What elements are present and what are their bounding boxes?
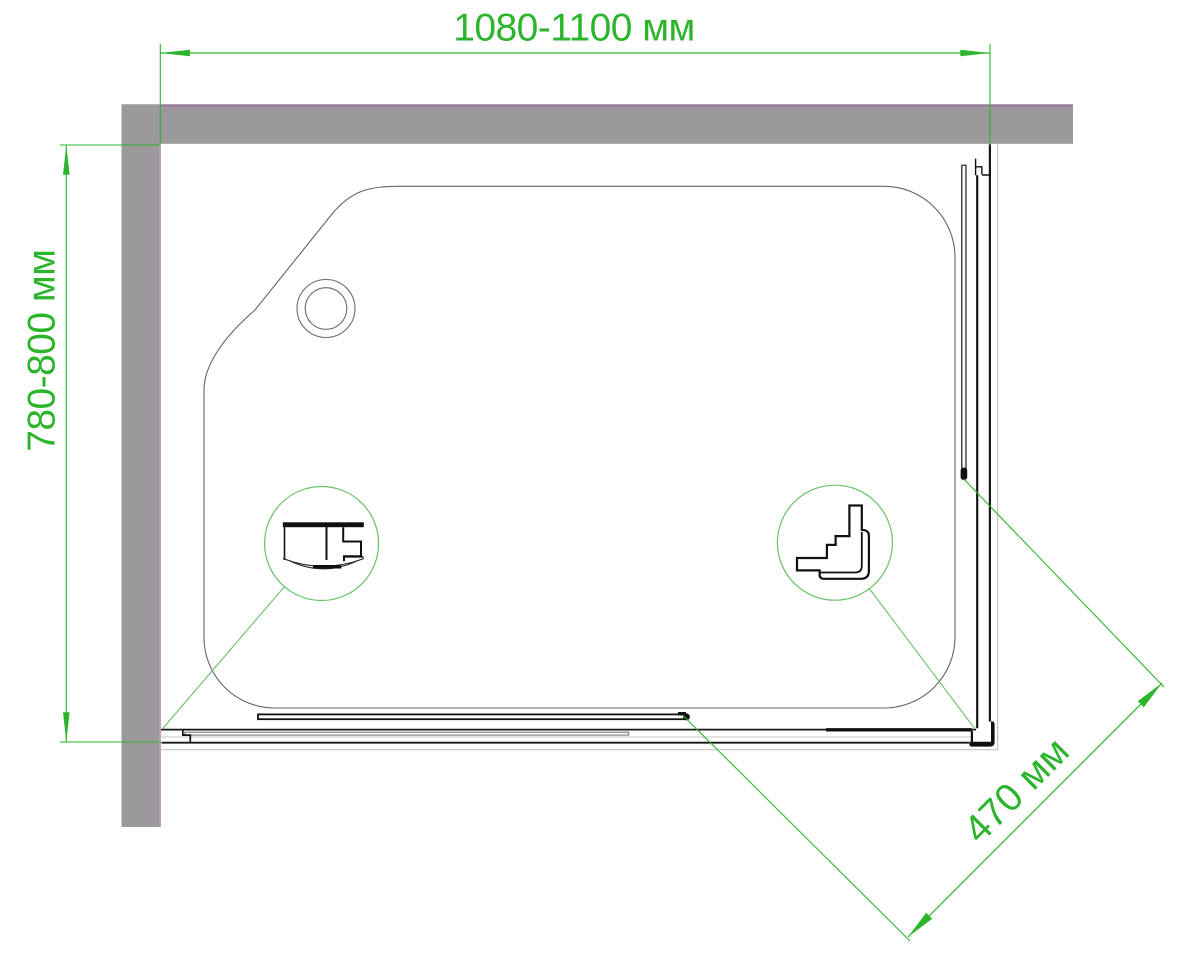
svg-text:780-800 мм: 780-800 мм (21, 250, 64, 452)
svg-text:1080-1100 мм: 1080-1100 мм (453, 7, 694, 50)
